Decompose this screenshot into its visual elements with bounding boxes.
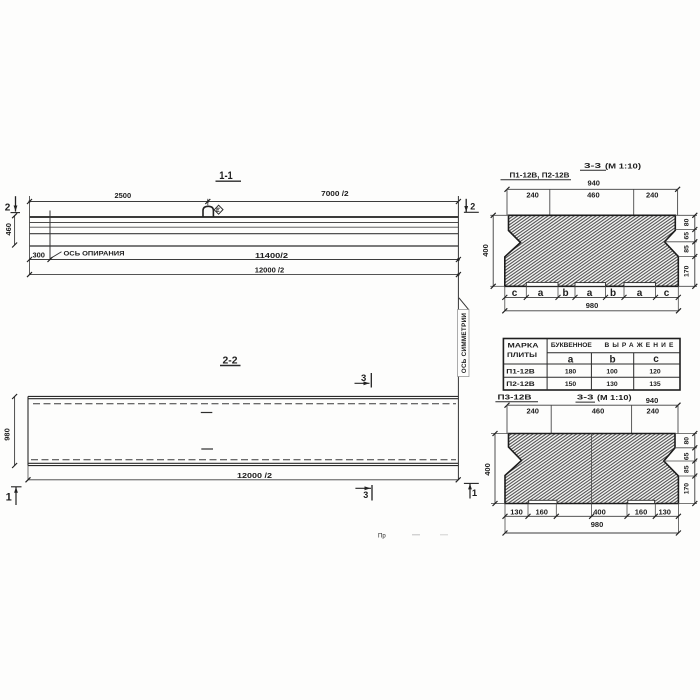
svg-text:240: 240: [647, 406, 660, 415]
svg-text:(М 1:10): (М 1:10): [605, 161, 642, 170]
svg-text:ОСЬ ОПИРАНИЯ: ОСЬ ОПИРАНИЯ: [64, 251, 126, 258]
svg-text:100: 100: [606, 369, 618, 376]
svg-text:980: 980: [591, 520, 604, 529]
svg-text:3: 3: [361, 373, 366, 384]
svg-text:(М 1:10): (М 1:10): [597, 393, 632, 402]
svg-text:11400/2: 11400/2: [255, 251, 288, 260]
svg-text:80: 80: [683, 437, 690, 445]
svg-text:МАРКА: МАРКА: [508, 342, 539, 349]
svg-text:ОСЬ СИММЕТРИИ: ОСЬ СИММЕТРИИ: [461, 313, 468, 374]
svg-text:3-3: 3-3: [577, 392, 594, 401]
svg-text:150: 150: [565, 381, 577, 388]
svg-text:ПЛИТЫ: ПЛИТЫ: [507, 352, 537, 359]
svg-text:170: 170: [683, 483, 690, 495]
svg-text:a: a: [538, 288, 544, 299]
svg-text:2: 2: [5, 202, 11, 213]
svg-text:b: b: [562, 288, 568, 299]
svg-text:85: 85: [684, 245, 691, 253]
svg-text:65: 65: [684, 232, 691, 240]
svg-text:400: 400: [483, 463, 492, 476]
svg-text:300: 300: [32, 250, 45, 259]
svg-text:940: 940: [646, 396, 659, 405]
svg-text:135: 135: [649, 381, 661, 388]
svg-text:БУКВЕННОЕ: БУКВЕННОЕ: [551, 342, 593, 349]
svg-text:П1-12В: П1-12В: [506, 369, 535, 376]
svg-text:12000 /2: 12000 /2: [237, 471, 272, 480]
svg-text:120: 120: [649, 369, 661, 376]
svg-text:240: 240: [526, 191, 539, 200]
svg-text:12000 /2: 12000 /2: [255, 265, 285, 274]
svg-text:7000 /2: 7000 /2: [321, 189, 349, 198]
svg-text:400: 400: [593, 508, 606, 517]
svg-text:170: 170: [684, 265, 691, 277]
svg-text:b: b: [609, 354, 615, 365]
svg-text:980: 980: [2, 428, 11, 441]
svg-text:2-2: 2-2: [223, 355, 238, 367]
svg-text:460: 460: [4, 223, 13, 236]
svg-text:2: 2: [470, 202, 475, 212]
svg-text:85: 85: [683, 465, 690, 473]
svg-text:a: a: [637, 288, 643, 299]
svg-text:П2-12В: П2-12В: [506, 381, 535, 388]
svg-text:П3-12В: П3-12В: [498, 392, 533, 401]
svg-text:80: 80: [684, 218, 691, 226]
svg-text:980: 980: [586, 301, 599, 310]
svg-text:П1-12В, П2-12В: П1-12В, П2-12В: [510, 171, 571, 180]
svg-text:1: 1: [472, 488, 478, 499]
svg-text:940: 940: [587, 179, 600, 188]
svg-text:Пр: Пр: [378, 534, 386, 540]
svg-text:460: 460: [587, 191, 600, 200]
svg-text:160: 160: [635, 508, 648, 517]
svg-text:a: a: [568, 354, 574, 365]
svg-text:240: 240: [526, 406, 539, 415]
svg-text:240: 240: [646, 191, 659, 200]
svg-text:c: c: [664, 288, 670, 299]
svg-text:2500: 2500: [114, 191, 131, 200]
svg-text:ВЫРАЖЕНИЕ: ВЫРАЖЕНИЕ: [605, 342, 677, 349]
svg-text:180: 180: [565, 369, 577, 376]
svg-text:b: b: [610, 288, 616, 299]
svg-text:3-3: 3-3: [584, 161, 601, 170]
svg-text:c: c: [653, 354, 659, 365]
svg-text:130: 130: [510, 508, 523, 517]
svg-text:a: a: [587, 288, 593, 299]
svg-text:65: 65: [683, 452, 690, 460]
svg-text:3: 3: [363, 490, 368, 500]
svg-text:c: c: [512, 288, 518, 299]
svg-text:400: 400: [481, 244, 490, 257]
svg-text:160: 160: [535, 508, 548, 517]
svg-text:1-1: 1-1: [219, 170, 233, 182]
svg-text:130: 130: [606, 381, 618, 388]
svg-text:130: 130: [658, 508, 671, 517]
svg-text:460: 460: [592, 406, 605, 415]
svg-text:1: 1: [6, 491, 12, 503]
